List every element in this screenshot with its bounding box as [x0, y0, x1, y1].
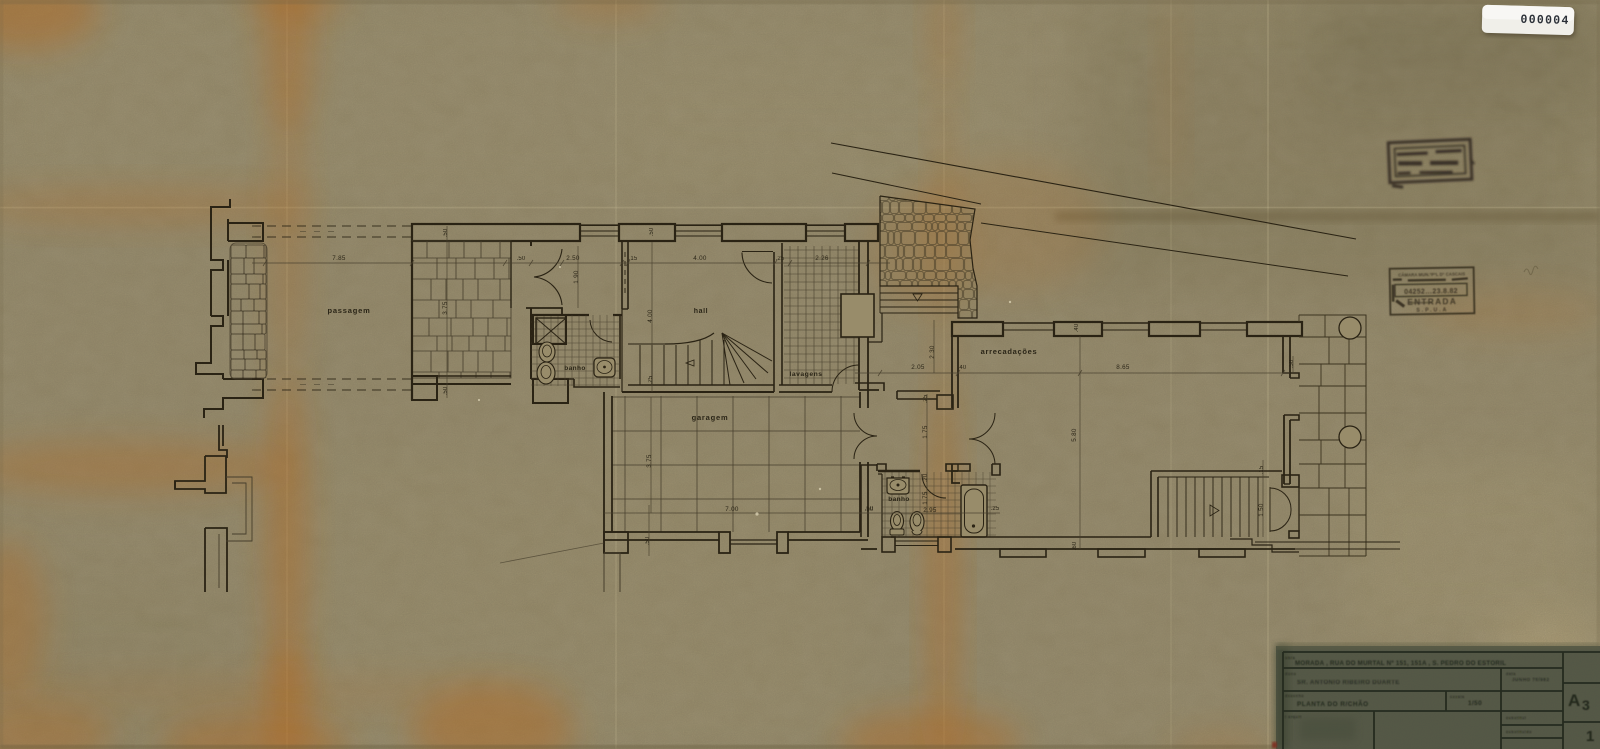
svg-text:A: A [1568, 691, 1580, 710]
svg-text:.50: .50 [649, 227, 655, 236]
svg-text:.60: .60 [1072, 541, 1078, 550]
svg-text:1.75: 1.75 [922, 425, 929, 439]
svg-text:.15: .15 [1259, 465, 1265, 474]
svg-text:04252…23.8.82: 04252…23.8.82 [1404, 288, 1458, 296]
svg-text:2.30: 2.30 [929, 345, 936, 359]
svg-text:1.90: 1.90 [573, 270, 580, 284]
svg-text:.15: .15 [629, 256, 638, 262]
svg-text:passagem: passagem [327, 306, 370, 315]
svg-text:.40: .40 [958, 365, 967, 371]
svg-text:hall: hall [694, 308, 708, 315]
svg-text:.25: .25 [648, 375, 654, 384]
svg-text:.50: .50 [517, 256, 526, 262]
svg-text:.50: .50 [645, 536, 651, 545]
svg-text:S.P.U.A: S.P.U.A [1416, 307, 1448, 314]
svg-text:3.75: 3.75 [646, 454, 653, 468]
svg-text:banho: banho [888, 496, 910, 503]
svg-text:7.85: 7.85 [332, 255, 346, 262]
svg-text:1.50: 1.50 [1258, 503, 1265, 517]
svg-text:8.65: 8.65 [1116, 364, 1130, 371]
svg-text:4.00: 4.00 [647, 309, 654, 323]
svg-text:.25: .25 [776, 256, 785, 262]
svg-text:substituido: substituido [1506, 730, 1532, 734]
svg-text:.40: .40 [1074, 323, 1080, 332]
svg-text:.25: .25 [923, 394, 929, 403]
svg-text:.50: .50 [443, 228, 449, 237]
svg-text:desenho: desenho [1285, 694, 1304, 698]
svg-text:2.26: 2.26 [815, 255, 829, 262]
svg-text:2.05: 2.05 [911, 364, 925, 371]
svg-text:JUNHO 75/982: JUNHO 75/982 [1512, 677, 1549, 682]
svg-text:l arquit: l arquit [1285, 715, 1302, 719]
svg-text:.25: .25 [991, 506, 1000, 512]
svg-text:data: data [1506, 672, 1516, 676]
svg-text:.50: .50 [865, 506, 874, 512]
svg-text:5.80: 5.80 [1071, 428, 1078, 442]
svg-text:banho: banho [564, 365, 586, 372]
svg-text:.50: .50 [1289, 359, 1295, 368]
svg-text:arrecadações: arrecadações [981, 347, 1038, 356]
svg-text:dono: dono [1285, 672, 1296, 676]
svg-text:3: 3 [1582, 697, 1590, 713]
svg-text:2.50: 2.50 [566, 255, 580, 262]
svg-text:2.95: 2.95 [923, 507, 937, 514]
svg-text:1/50: 1/50 [1468, 700, 1482, 707]
svg-text:.20: .20 [923, 473, 929, 482]
svg-text:MORADA , RUA DO MURTAL Nº 151: MORADA , RUA DO MURTAL Nº 151, 151A , S.… [1295, 660, 1506, 667]
svg-text:1.75: 1.75 [922, 491, 929, 505]
svg-text:1: 1 [1586, 728, 1594, 745]
svg-text:.50: .50 [443, 386, 449, 395]
svg-text:lavagens: lavagens [789, 371, 822, 378]
svg-text:substitui: substitui [1506, 716, 1526, 720]
svg-text:3.75: 3.75 [442, 301, 449, 315]
svg-text:4.00: 4.00 [693, 255, 707, 262]
svg-text:escala: escala [1450, 695, 1465, 699]
svg-text:PLANTA DO R/CHÃO: PLANTA DO R/CHÃO [1297, 699, 1369, 708]
svg-text:garagem: garagem [692, 413, 729, 422]
svg-text:000004: 000004 [1520, 12, 1570, 28]
svg-text:7.00: 7.00 [725, 506, 739, 513]
svg-text:SR. ANTONIO RIBEIRO DUARTE: SR. ANTONIO RIBEIRO DUARTE [1297, 680, 1400, 686]
